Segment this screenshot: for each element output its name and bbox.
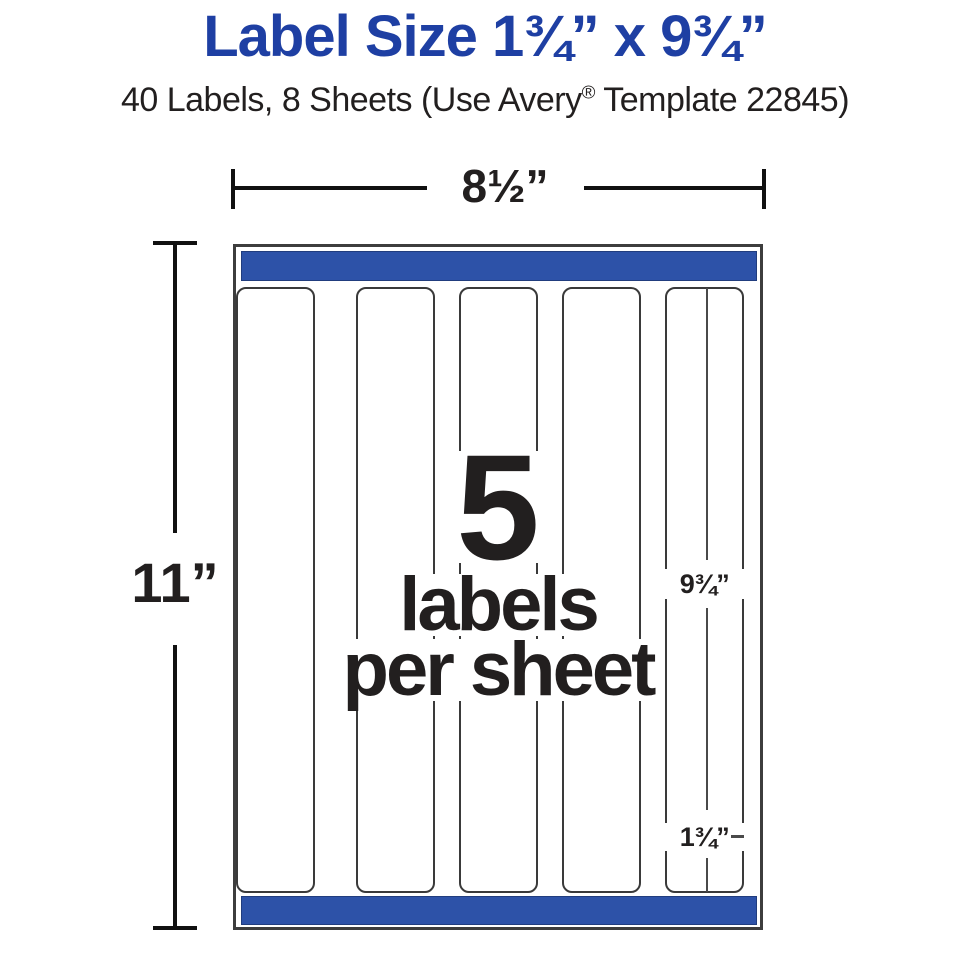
label-width-dim-dash-right: [731, 835, 744, 838]
top-margin-bar: [241, 251, 757, 281]
width-dim-tick-right: [762, 169, 766, 209]
per-sheet-word-line: per sheet: [236, 639, 760, 701]
subtitle: 40 Labels, 8 Sheets (Use Avery® Template…: [0, 80, 970, 120]
height-dim-cap-bottom: [153, 926, 197, 930]
subtitle-suffix: Template 22845): [595, 81, 849, 119]
width-dim-line-right: [584, 186, 765, 190]
label-sheet: 9¾” 1¾” 5 labels per sheet: [233, 244, 763, 930]
labels-per-sheet-text: 5 labels per sheet: [236, 451, 760, 701]
label-height-dim-line-bottom: [706, 858, 708, 892]
labels-count: 5: [438, 451, 557, 563]
page-title: Label Size 1¾” x 9¾”: [0, 4, 970, 70]
registered-mark: ®: [582, 82, 595, 103]
subtitle-prefix: 40 Labels, 8 Sheets (Use Avery: [121, 81, 582, 119]
bottom-margin-bar: [241, 896, 757, 925]
width-dim-line-left: [233, 186, 427, 190]
height-dim-line-bottom: [173, 645, 177, 928]
height-dim-line-top: [173, 243, 177, 533]
per-sheet-word: per sheet: [331, 639, 666, 701]
height-dim-label: 11”: [105, 552, 245, 614]
product-diagram: Label Size 1¾” x 9¾” 40 Labels, 8 Sheets…: [0, 0, 970, 971]
labels-count-line: 5: [236, 451, 760, 564]
width-dim-label: 8½”: [420, 160, 590, 212]
